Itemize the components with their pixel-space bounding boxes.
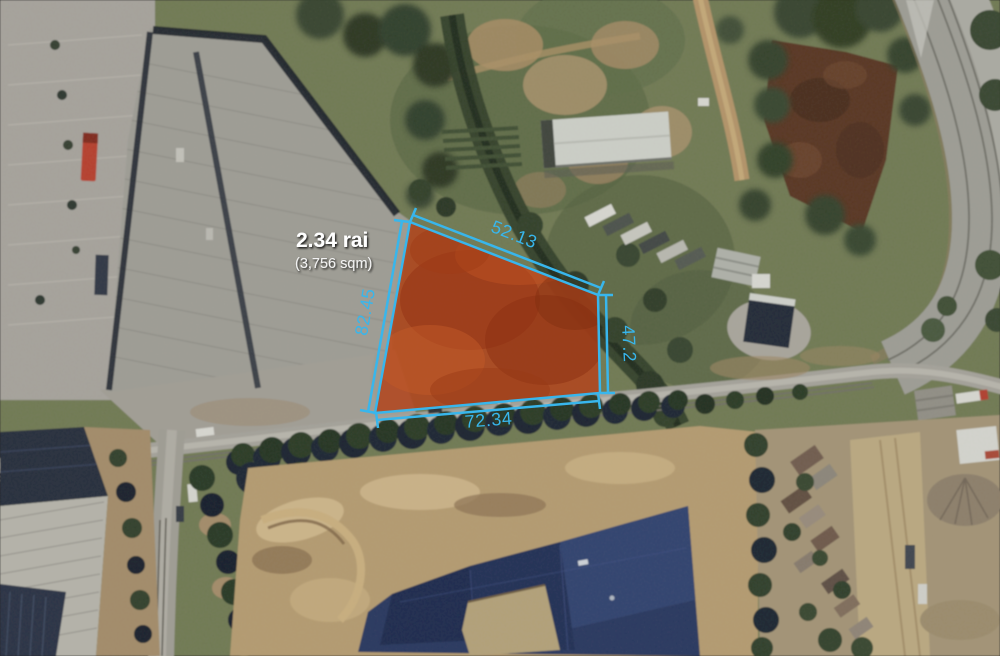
satellite-image: 52.13 82.45 47.2 72.34 2.34 rai (3,756 s… xyxy=(0,0,1000,656)
area-label: 2.34 rai xyxy=(296,229,368,252)
area-sublabel: (3,756 sqm) xyxy=(295,256,372,272)
dimension-label-bottom: 72.34 xyxy=(464,408,513,432)
satellite-map-view: 52.13 82.45 47.2 72.34 2.34 rai (3,756 s… xyxy=(0,0,1000,656)
dimension-label-right: 47.2 xyxy=(618,325,640,363)
